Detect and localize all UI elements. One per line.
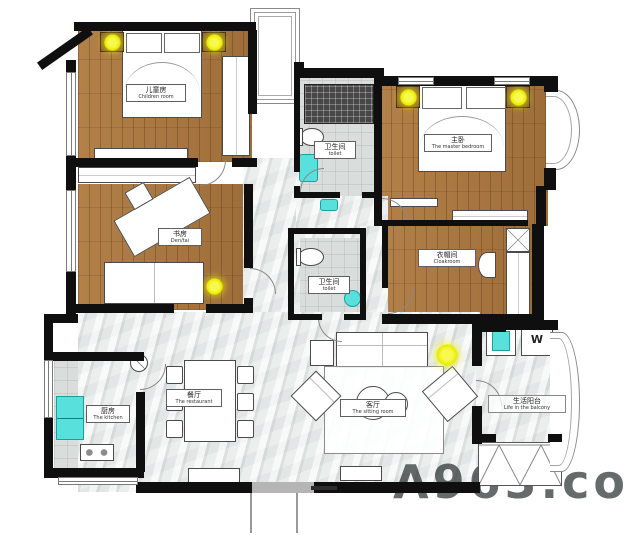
wall	[206, 304, 246, 313]
wall	[382, 220, 528, 226]
wall	[52, 352, 144, 361]
sofa	[336, 332, 428, 368]
wall	[344, 314, 366, 320]
toilet-tank	[296, 248, 301, 266]
room-label-dining: 餐厅 The restaurant	[166, 389, 222, 407]
wall	[44, 416, 53, 472]
room-label-toilet-top: 卫生间 toilet	[314, 141, 356, 159]
dining-chair	[166, 366, 183, 384]
room-label-balcony: 生活阳台 Life in the balcony	[488, 395, 566, 413]
cloakroom-cabinet-column	[506, 252, 530, 316]
wall	[548, 434, 562, 442]
study-sofa	[104, 262, 204, 304]
pillow	[422, 87, 462, 109]
pillow	[126, 33, 162, 53]
pillow	[164, 33, 200, 53]
window	[58, 477, 138, 485]
wall	[544, 76, 558, 92]
bay-window-top	[250, 8, 300, 104]
window	[44, 360, 53, 418]
room-label-master: 主卧 The master bedroom	[424, 134, 492, 152]
wall	[232, 158, 257, 167]
children-wardrobe	[222, 56, 250, 156]
wall	[74, 22, 256, 31]
washing-machine-label: W	[522, 327, 552, 353]
wall	[74, 304, 174, 313]
wall	[136, 482, 252, 493]
hall-basin	[320, 199, 338, 211]
zigzag-glazing-icon	[479, 443, 561, 485]
ceiling-light-icon	[436, 344, 458, 366]
wall	[244, 298, 253, 313]
wall	[536, 186, 546, 226]
children-closet-band	[78, 167, 196, 183]
wall	[288, 228, 294, 320]
dining-chair	[237, 420, 254, 438]
wall	[294, 76, 300, 172]
floor-plan: A963.co	[0, 0, 640, 535]
entry-line	[296, 493, 298, 533]
cloakroom-cabinet	[506, 228, 530, 252]
wall	[500, 320, 558, 330]
room-label-study: 书房 Den/tai	[158, 228, 202, 246]
pillow	[466, 87, 506, 109]
stove	[80, 444, 114, 461]
window	[494, 77, 530, 85]
wall	[314, 482, 480, 493]
dining-chair	[166, 420, 183, 438]
washing-machine: W	[521, 326, 553, 356]
wall	[476, 434, 496, 442]
room-label-kitchen: 厨房 The kitchen	[86, 405, 130, 423]
wall	[532, 224, 544, 320]
entry-line	[250, 493, 252, 533]
room-label-toilet-mid: 卫生间 toilet	[308, 276, 350, 294]
dining-chair	[237, 393, 254, 411]
wall	[288, 314, 322, 320]
entry-door	[252, 482, 314, 493]
toilet-fixture	[298, 248, 324, 266]
ceiling-light-icon	[206, 278, 223, 295]
room-label-cloakroom: 衣帽间 Cloakroom	[418, 249, 476, 267]
wall	[136, 392, 145, 472]
wall	[472, 322, 482, 366]
side-table	[310, 340, 334, 366]
room-label-sitting: 客厅 The sitting room	[340, 399, 406, 417]
wall	[376, 76, 382, 200]
wall	[288, 228, 366, 234]
wall	[248, 30, 257, 114]
window	[66, 190, 76, 272]
window	[66, 72, 76, 156]
ceiling-light-icon	[104, 34, 121, 51]
shoe-cabinet	[188, 468, 240, 483]
wall	[360, 228, 366, 320]
wall	[362, 192, 382, 198]
balcony-sink	[492, 331, 510, 351]
wall	[244, 184, 253, 268]
door-arc	[200, 160, 226, 186]
shower	[304, 84, 374, 124]
wall	[74, 158, 198, 167]
tv-cabinet	[340, 466, 382, 481]
wall	[296, 68, 384, 78]
cloakroom-chair	[478, 252, 496, 278]
kitchen-sink	[56, 396, 84, 440]
ceiling-light-icon	[510, 89, 527, 106]
ceiling-light-icon	[206, 34, 223, 51]
ceiling-light-icon	[400, 89, 417, 106]
dining-chair	[237, 366, 254, 384]
wall	[382, 226, 388, 288]
window	[398, 77, 434, 85]
tv-screen	[311, 486, 337, 490]
wall	[296, 192, 340, 198]
room-label-children: 儿童房 Children room	[126, 84, 186, 102]
